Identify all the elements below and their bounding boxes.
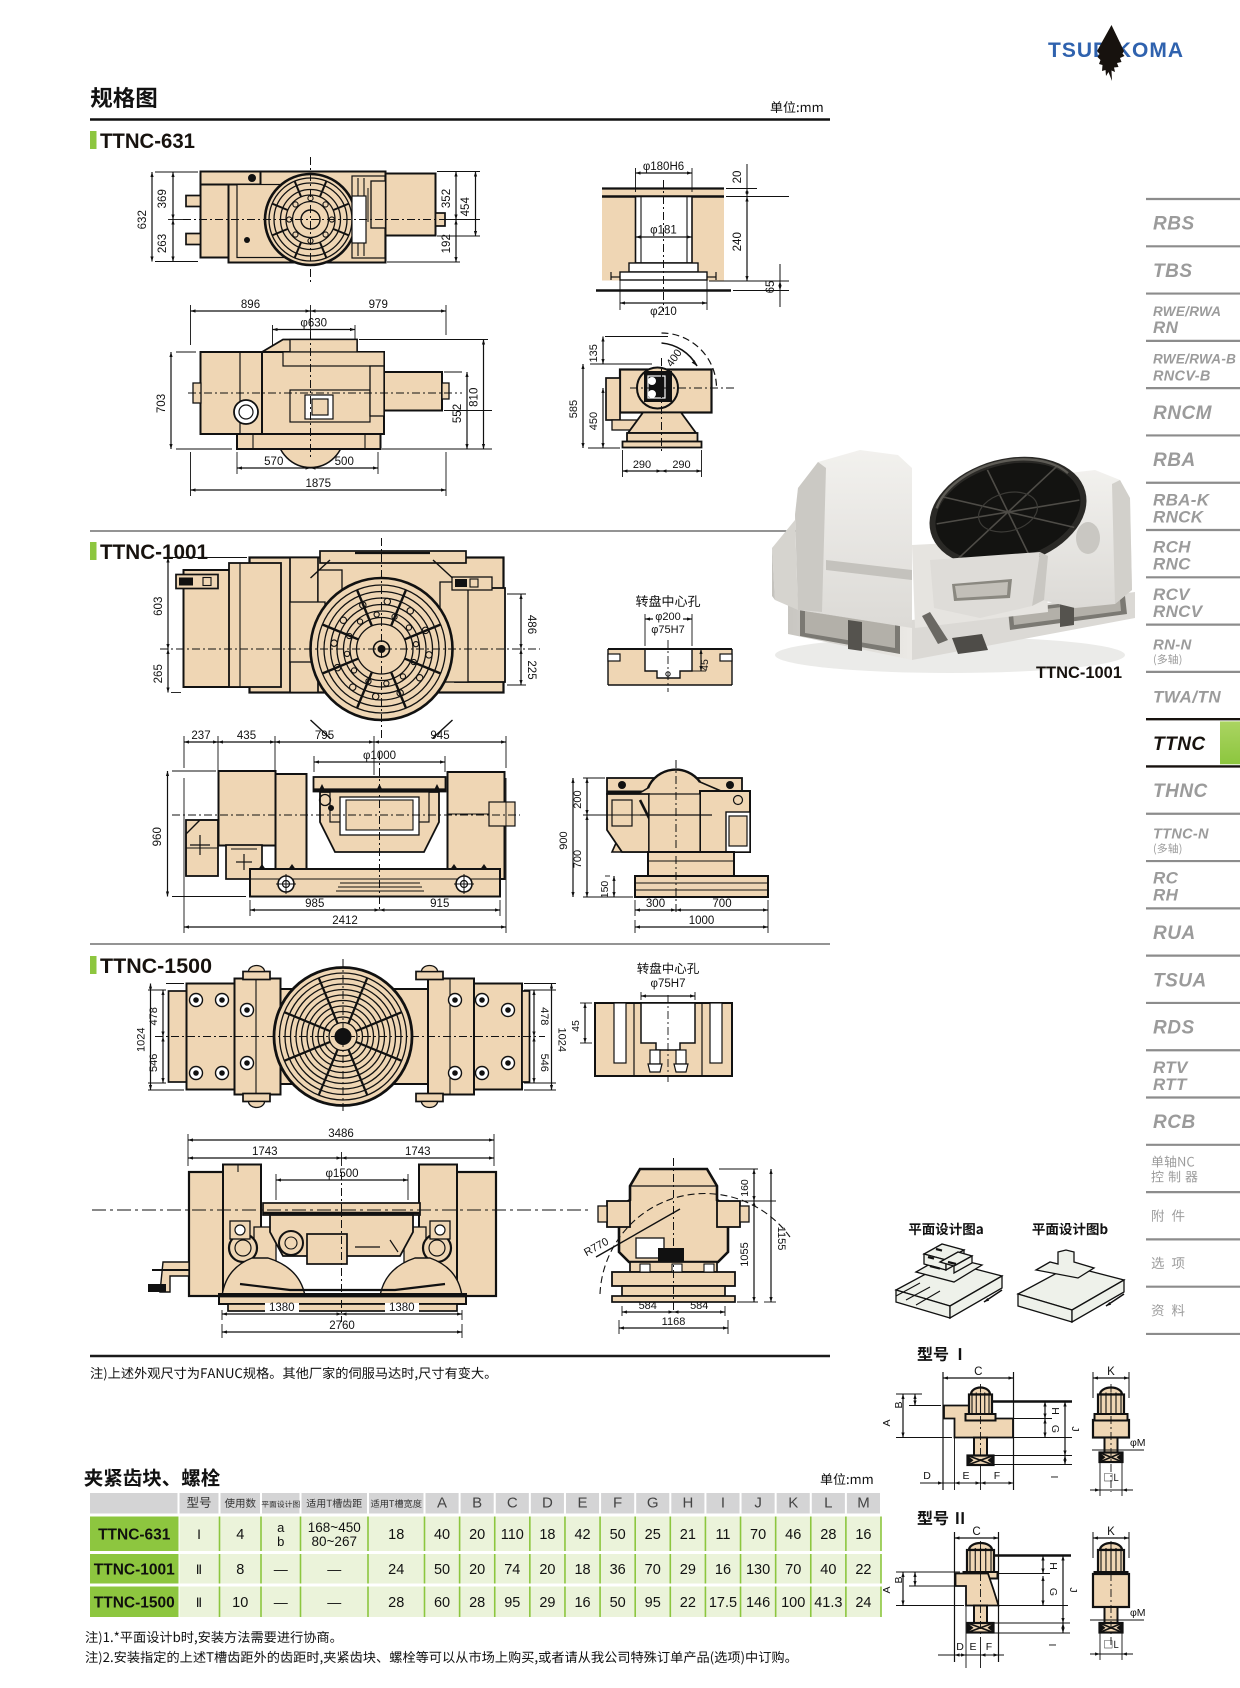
svg-text:237: 237	[191, 730, 210, 742]
svg-text:TTNC-1001: TTNC-1001	[1036, 663, 1122, 682]
svg-text:—: —	[327, 1561, 341, 1577]
svg-text:74: 74	[504, 1562, 520, 1578]
svg-text:φ210: φ210	[650, 306, 677, 318]
svg-text:50: 50	[610, 1595, 626, 1611]
svg-text:3486: 3486	[328, 1128, 354, 1140]
svg-text:24: 24	[388, 1562, 404, 1578]
svg-text:I: I	[1050, 1476, 1061, 1479]
svg-text:J: J	[754, 1495, 762, 1512]
svg-text:Ⅱ: Ⅱ	[196, 1595, 202, 1610]
svg-text:2760: 2760	[329, 1320, 355, 1332]
svg-text:985: 985	[305, 898, 324, 910]
svg-text:φM: φM	[1130, 1607, 1146, 1619]
svg-text:A: A	[881, 1419, 893, 1426]
svg-text:28: 28	[820, 1527, 836, 1543]
svg-text:915: 915	[430, 898, 449, 910]
svg-text:369: 369	[157, 189, 169, 208]
svg-text:18: 18	[574, 1562, 590, 1578]
svg-text:632: 632	[137, 210, 149, 229]
svg-text:110: 110	[501, 1527, 524, 1543]
svg-text:a: a	[277, 1520, 285, 1535]
svg-text:Ⅰ: Ⅰ	[197, 1527, 201, 1542]
svg-text:TTNC-N: TTNC-N	[1153, 826, 1209, 842]
svg-text:25: 25	[645, 1527, 661, 1543]
svg-text:F: F	[994, 1470, 1000, 1482]
svg-text:C: C	[507, 1495, 518, 1512]
svg-text:263: 263	[157, 234, 169, 253]
svg-text:I: I	[1048, 1644, 1059, 1647]
svg-text:1155: 1155	[775, 1227, 787, 1251]
svg-text:4: 4	[236, 1527, 244, 1543]
svg-text:E: E	[962, 1470, 969, 1482]
svg-text:1000: 1000	[689, 915, 715, 927]
svg-text:1380: 1380	[269, 1302, 295, 1314]
svg-text:22: 22	[680, 1595, 696, 1611]
svg-text:896: 896	[241, 299, 260, 311]
svg-text:40: 40	[434, 1527, 450, 1543]
svg-text:KOMA: KOMA	[1116, 39, 1184, 62]
svg-text:THNC: THNC	[1153, 781, 1208, 802]
svg-text:552: 552	[452, 404, 464, 423]
svg-text:RNCK: RNCK	[1153, 507, 1205, 526]
svg-text:11: 11	[715, 1527, 730, 1543]
svg-text:1055: 1055	[739, 1242, 751, 1266]
svg-text:I: I	[721, 1495, 725, 1512]
svg-text:20: 20	[539, 1562, 555, 1578]
svg-text:A: A	[881, 1586, 893, 1593]
svg-text:φ630: φ630	[300, 318, 327, 330]
svg-text:40: 40	[820, 1562, 836, 1578]
svg-text:300: 300	[646, 898, 665, 910]
svg-text:φ75H7: φ75H7	[651, 978, 686, 990]
svg-text:10: 10	[232, 1595, 248, 1611]
svg-text:435: 435	[237, 730, 256, 742]
svg-text:810: 810	[469, 388, 481, 407]
svg-text:K: K	[1107, 1526, 1115, 1538]
svg-text:28: 28	[388, 1595, 404, 1611]
svg-text:J: J	[1069, 1426, 1081, 1431]
svg-text:225: 225	[525, 660, 537, 679]
svg-text:130: 130	[746, 1562, 770, 1578]
svg-text:70: 70	[645, 1562, 661, 1578]
svg-text:168~450: 168~450	[308, 1520, 361, 1535]
svg-text:1024: 1024	[136, 1028, 148, 1052]
svg-text:700: 700	[572, 850, 584, 868]
svg-text:TSUA: TSUA	[1153, 970, 1207, 991]
svg-text:RNCM: RNCM	[1153, 403, 1213, 424]
svg-text:42: 42	[574, 1527, 590, 1543]
svg-text:8: 8	[236, 1562, 244, 1578]
svg-text:RBS: RBS	[1153, 214, 1195, 235]
svg-text:B: B	[472, 1495, 482, 1512]
svg-text:70: 70	[750, 1527, 766, 1543]
svg-text:E: E	[578, 1495, 588, 1512]
svg-text:TTNC-1001: TTNC-1001	[100, 540, 208, 564]
svg-text:80~267: 80~267	[312, 1534, 357, 1549]
svg-text:RNCV-B: RNCV-B	[1153, 369, 1211, 385]
svg-text:36: 36	[610, 1562, 626, 1578]
svg-text:—: —	[274, 1594, 288, 1610]
svg-text:φM: φM	[1130, 1437, 1146, 1449]
svg-text:795: 795	[315, 730, 334, 742]
svg-text:TTNC-1500: TTNC-1500	[100, 954, 212, 978]
svg-text:20: 20	[469, 1527, 485, 1543]
svg-text:50: 50	[434, 1562, 450, 1578]
svg-text:TTNC-1500: TTNC-1500	[94, 1594, 175, 1611]
svg-text:603: 603	[153, 597, 165, 616]
svg-text:16: 16	[715, 1562, 731, 1578]
svg-text:F: F	[986, 1641, 992, 1653]
svg-text:F: F	[613, 1495, 622, 1512]
svg-text:290: 290	[633, 459, 651, 471]
svg-text:945: 945	[430, 730, 449, 742]
svg-text:584: 584	[639, 1300, 657, 1312]
svg-text:500: 500	[335, 456, 354, 468]
svg-text:29: 29	[680, 1562, 696, 1578]
svg-text:C: C	[972, 1526, 980, 1538]
svg-text:G: G	[1047, 1588, 1059, 1596]
svg-text:RN-N: RN-N	[1153, 636, 1193, 653]
svg-text:546: 546	[538, 1054, 550, 1072]
svg-text:16: 16	[574, 1595, 590, 1611]
svg-text:RH: RH	[1153, 886, 1179, 905]
svg-text:960: 960	[152, 827, 164, 846]
svg-text:E: E	[969, 1641, 976, 1653]
svg-text:265: 265	[153, 664, 165, 683]
svg-text:M: M	[857, 1495, 870, 1512]
svg-text:584: 584	[690, 1300, 708, 1312]
svg-text:70: 70	[785, 1562, 801, 1578]
svg-text:K: K	[1107, 1366, 1115, 1378]
svg-text:29: 29	[539, 1595, 555, 1611]
svg-text:—: —	[327, 1594, 341, 1610]
svg-text:TTNC-1001: TTNC-1001	[94, 1561, 175, 1578]
svg-text:D: D	[923, 1470, 931, 1482]
svg-text:RNC: RNC	[1153, 555, 1191, 574]
svg-text:478: 478	[538, 1007, 550, 1025]
svg-text:G: G	[647, 1495, 659, 1512]
svg-text:1743: 1743	[252, 1146, 278, 1158]
svg-text:60: 60	[434, 1595, 450, 1611]
svg-text:65: 65	[765, 281, 777, 294]
svg-text:486: 486	[525, 615, 537, 634]
svg-text:478: 478	[148, 1007, 160, 1025]
svg-text:2412: 2412	[332, 915, 358, 927]
svg-text:192: 192	[441, 234, 453, 253]
svg-text:G: G	[1049, 1425, 1061, 1433]
svg-text:TTNC-631: TTNC-631	[98, 1526, 171, 1543]
svg-text:160: 160	[739, 1179, 751, 1197]
svg-text:RUA: RUA	[1153, 923, 1196, 944]
svg-text:100: 100	[781, 1595, 805, 1611]
svg-text:150: 150	[599, 881, 611, 899]
svg-text:21: 21	[680, 1527, 696, 1543]
svg-text:290: 290	[672, 459, 690, 471]
svg-text:17.5: 17.5	[709, 1595, 737, 1611]
svg-text:546: 546	[148, 1054, 160, 1072]
svg-text:D: D	[542, 1495, 553, 1512]
svg-text:φ181: φ181	[650, 225, 677, 237]
svg-text:1875: 1875	[305, 478, 331, 490]
svg-text:41.3: 41.3	[814, 1595, 842, 1611]
svg-text:RWE/RWA: RWE/RWA	[1153, 304, 1221, 319]
svg-text:RBA: RBA	[1153, 450, 1196, 471]
svg-text:20: 20	[469, 1562, 485, 1578]
svg-text:A: A	[437, 1495, 447, 1512]
svg-text:16: 16	[855, 1527, 871, 1543]
svg-text:RTT: RTT	[1153, 1075, 1188, 1094]
svg-text:φ75H7: φ75H7	[651, 624, 684, 636]
svg-text:TWA/TN: TWA/TN	[1153, 688, 1221, 707]
svg-text:703: 703	[156, 394, 168, 413]
svg-text:95: 95	[504, 1595, 520, 1611]
svg-text:570: 570	[264, 456, 283, 468]
svg-text:700: 700	[712, 898, 731, 910]
svg-text:H: H	[682, 1495, 693, 1512]
svg-text:RNCV: RNCV	[1153, 602, 1204, 621]
svg-text:352: 352	[441, 189, 453, 208]
svg-text:1380: 1380	[389, 1302, 415, 1314]
svg-text:K: K	[788, 1495, 798, 1512]
svg-text:24: 24	[855, 1595, 871, 1611]
svg-text:H: H	[1049, 1407, 1061, 1415]
svg-text:979: 979	[369, 299, 388, 311]
svg-text:46: 46	[785, 1527, 801, 1543]
svg-text:45: 45	[570, 1020, 582, 1032]
svg-text:H: H	[1047, 1562, 1059, 1570]
svg-text:1024: 1024	[556, 1028, 568, 1052]
svg-text:TBS: TBS	[1153, 261, 1193, 282]
svg-text:50: 50	[610, 1527, 626, 1543]
svg-text:TTNC-631: TTNC-631	[100, 129, 195, 153]
svg-text:146: 146	[746, 1595, 770, 1611]
svg-text:240: 240	[732, 232, 744, 251]
svg-text:45: 45	[699, 659, 711, 671]
svg-text:RWE/RWA-B: RWE/RWA-B	[1153, 352, 1236, 367]
svg-text:b: b	[277, 1534, 284, 1549]
svg-text:28: 28	[469, 1595, 485, 1611]
svg-text:1168: 1168	[662, 1316, 686, 1328]
svg-text:900: 900	[558, 831, 570, 849]
svg-text:18: 18	[388, 1527, 404, 1543]
svg-text:RCB: RCB	[1153, 1112, 1196, 1133]
svg-text:1743: 1743	[405, 1146, 431, 1158]
svg-text:—: —	[274, 1561, 288, 1577]
svg-text:J: J	[1067, 1587, 1079, 1592]
svg-text:RDS: RDS	[1153, 1018, 1195, 1039]
svg-text:φ200: φ200	[655, 611, 681, 623]
svg-text:22: 22	[855, 1562, 871, 1578]
svg-text:L: L	[824, 1495, 832, 1512]
svg-text:450: 450	[588, 412, 600, 430]
svg-text:φ180H6: φ180H6	[643, 161, 684, 173]
svg-text:18: 18	[539, 1527, 555, 1543]
svg-text:C: C	[974, 1366, 982, 1378]
svg-text:TTNC: TTNC	[1153, 734, 1206, 755]
svg-text:20: 20	[732, 171, 744, 184]
svg-text:585: 585	[568, 400, 580, 418]
svg-text:135: 135	[588, 344, 600, 362]
svg-text:95: 95	[645, 1595, 661, 1611]
svg-text:D: D	[956, 1641, 964, 1653]
svg-text:RN: RN	[1153, 318, 1179, 337]
svg-text:200: 200	[572, 790, 584, 808]
svg-text:454: 454	[460, 197, 472, 217]
svg-text:Ⅱ: Ⅱ	[196, 1562, 202, 1577]
